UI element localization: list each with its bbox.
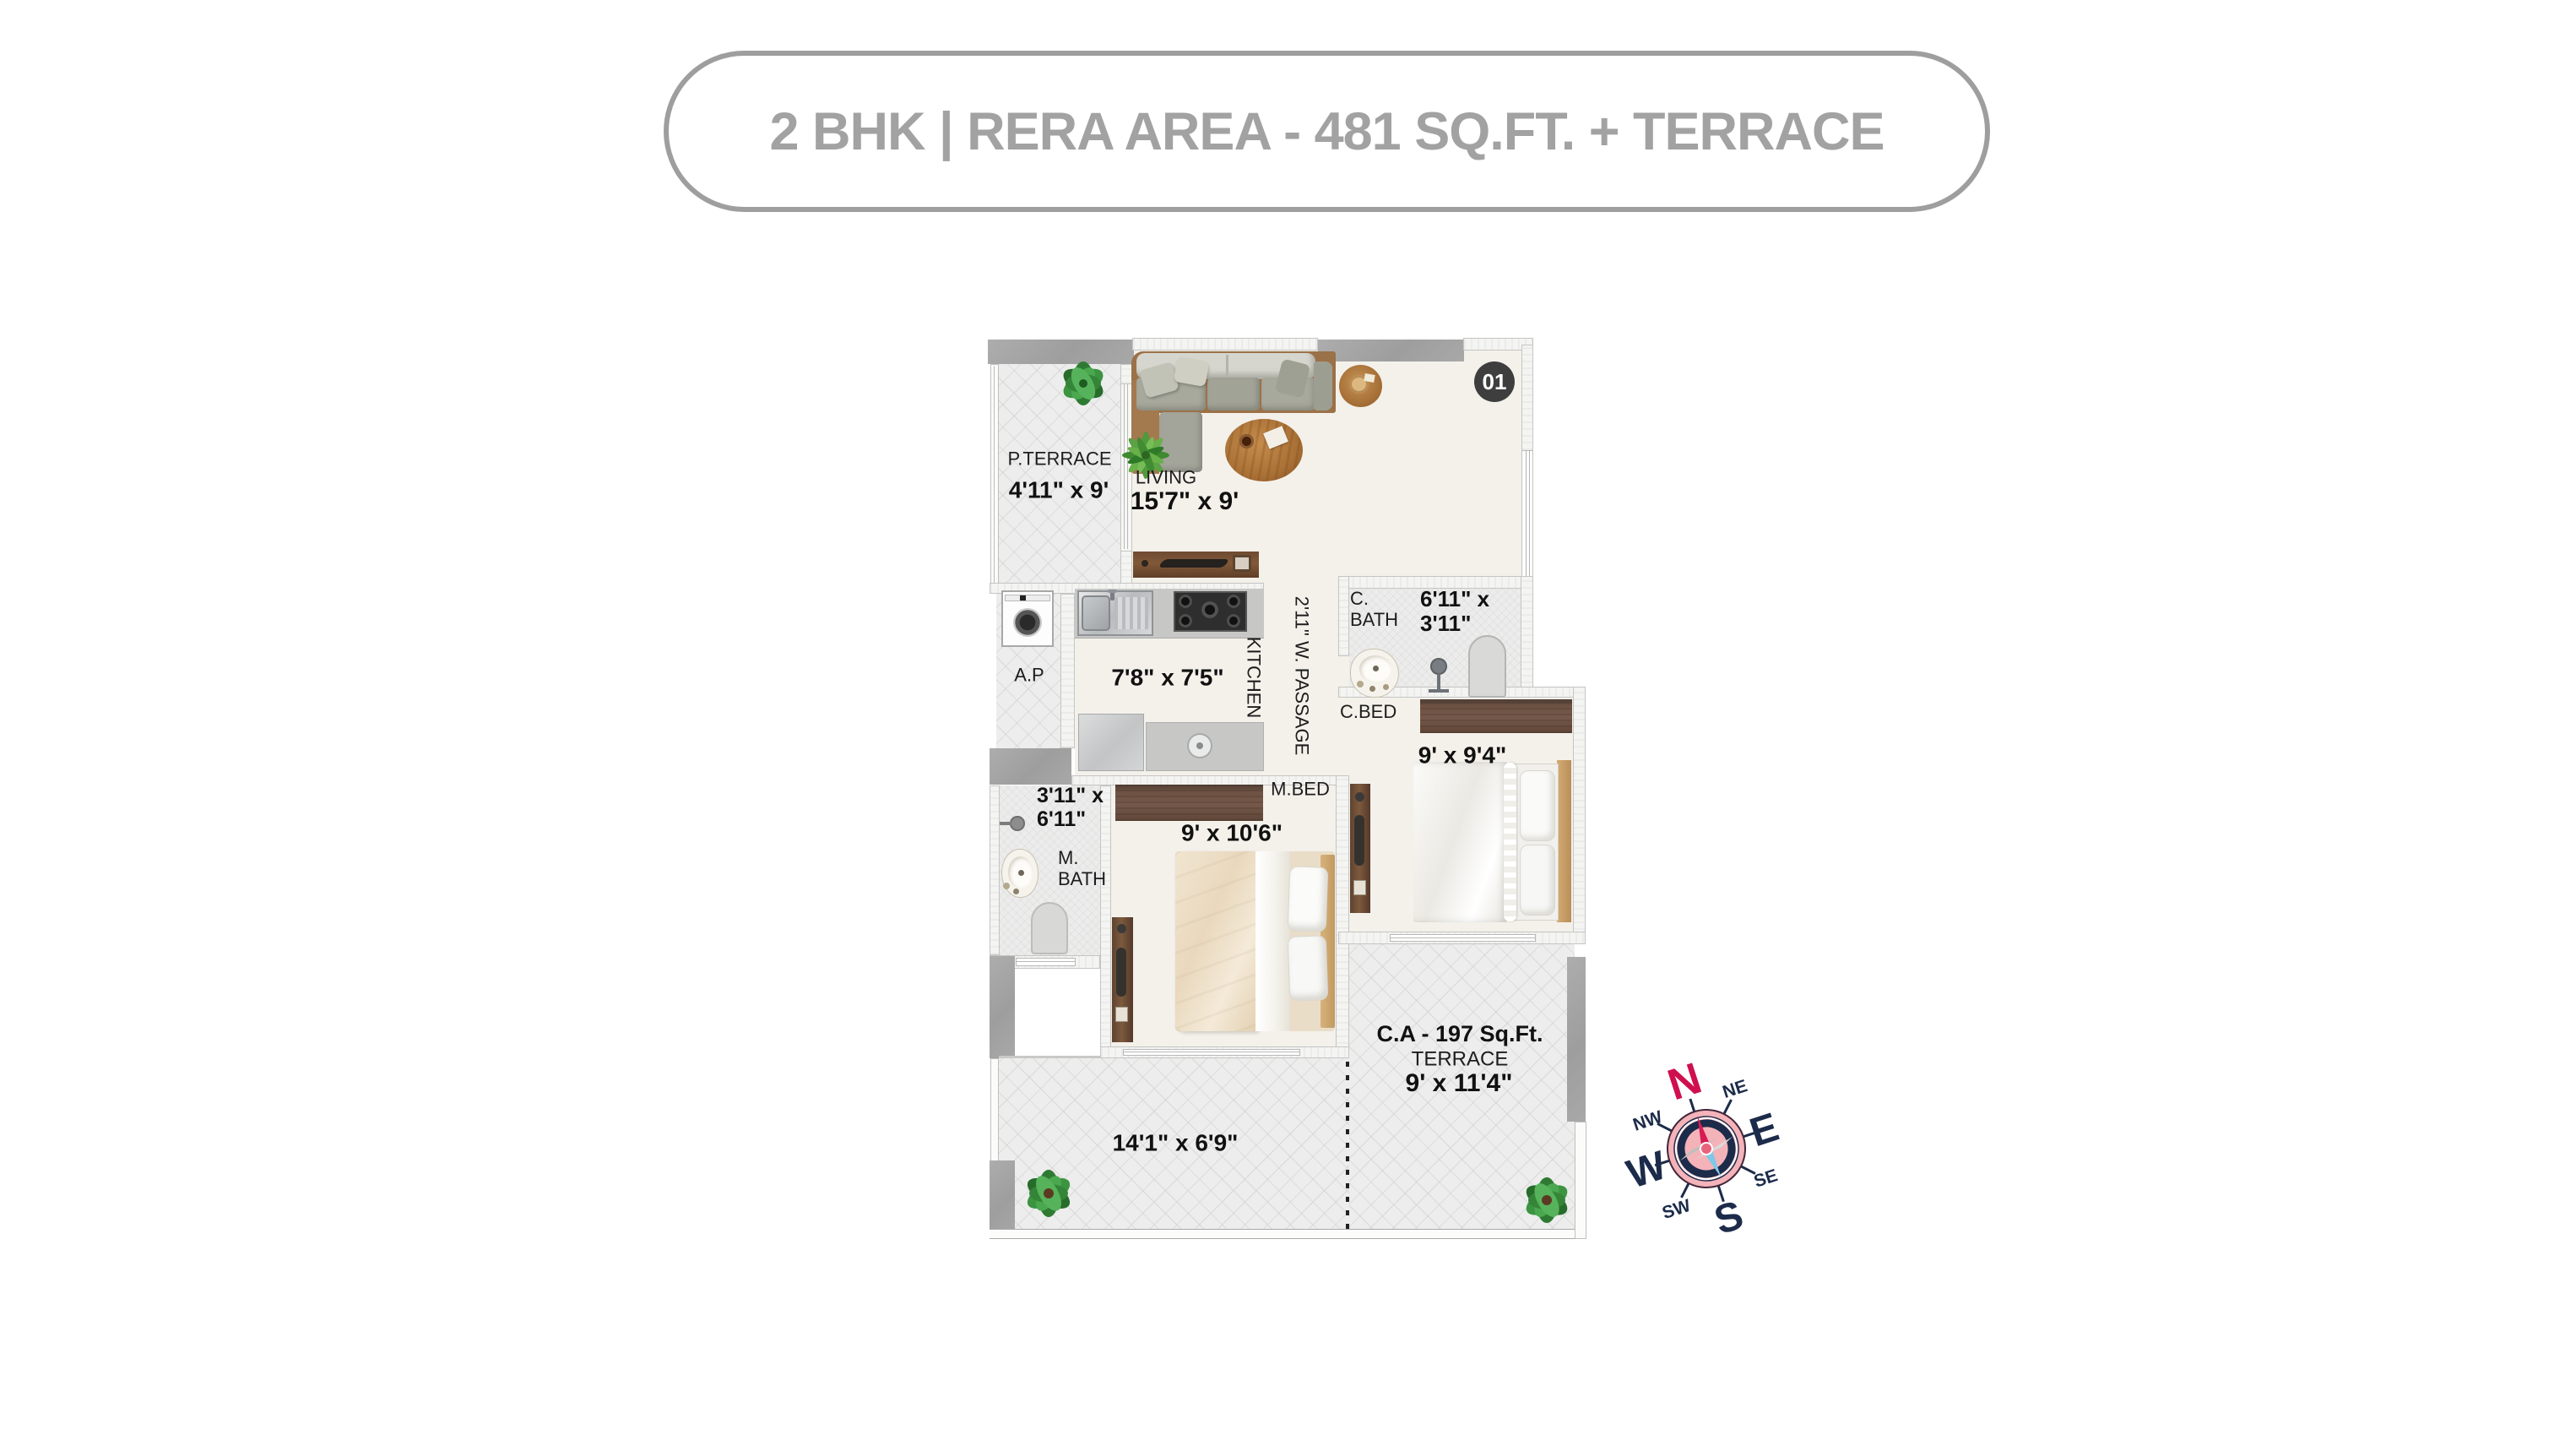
svg-text:S: S	[1709, 1193, 1749, 1243]
svg-text:NE: NE	[1720, 1076, 1749, 1102]
svg-text:NW: NW	[1630, 1107, 1665, 1135]
svg-text:W: W	[1622, 1143, 1673, 1198]
svg-text:N: N	[1662, 1054, 1708, 1111]
svg-text:E: E	[1744, 1105, 1784, 1155]
svg-text:SE: SE	[1752, 1166, 1781, 1192]
svg-text:SW: SW	[1660, 1196, 1693, 1223]
